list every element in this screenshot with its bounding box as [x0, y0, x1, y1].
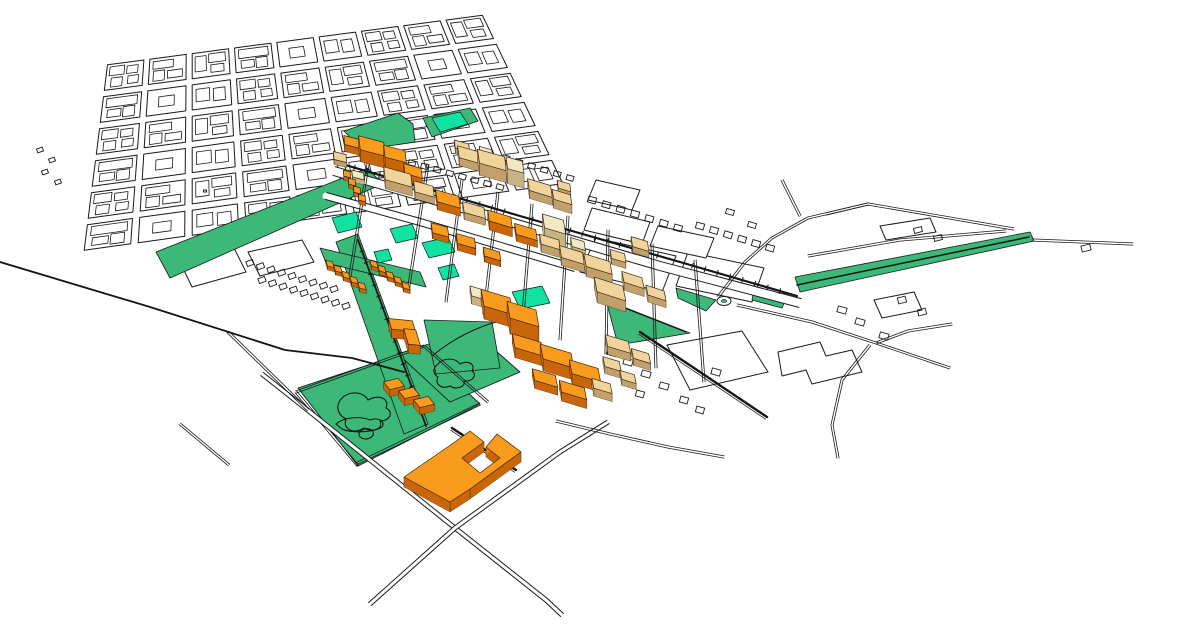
building [359, 194, 366, 206]
building [631, 349, 650, 371]
building [506, 157, 524, 188]
building [402, 282, 410, 294]
building [620, 370, 636, 389]
building [404, 329, 421, 355]
masterplan-svg [0, 0, 1200, 633]
building [488, 210, 513, 237]
building [483, 247, 501, 267]
building [507, 301, 539, 342]
building [436, 190, 461, 216]
urban-masterplan-diagram [0, 0, 1200, 633]
building [592, 378, 612, 401]
building [603, 357, 621, 379]
